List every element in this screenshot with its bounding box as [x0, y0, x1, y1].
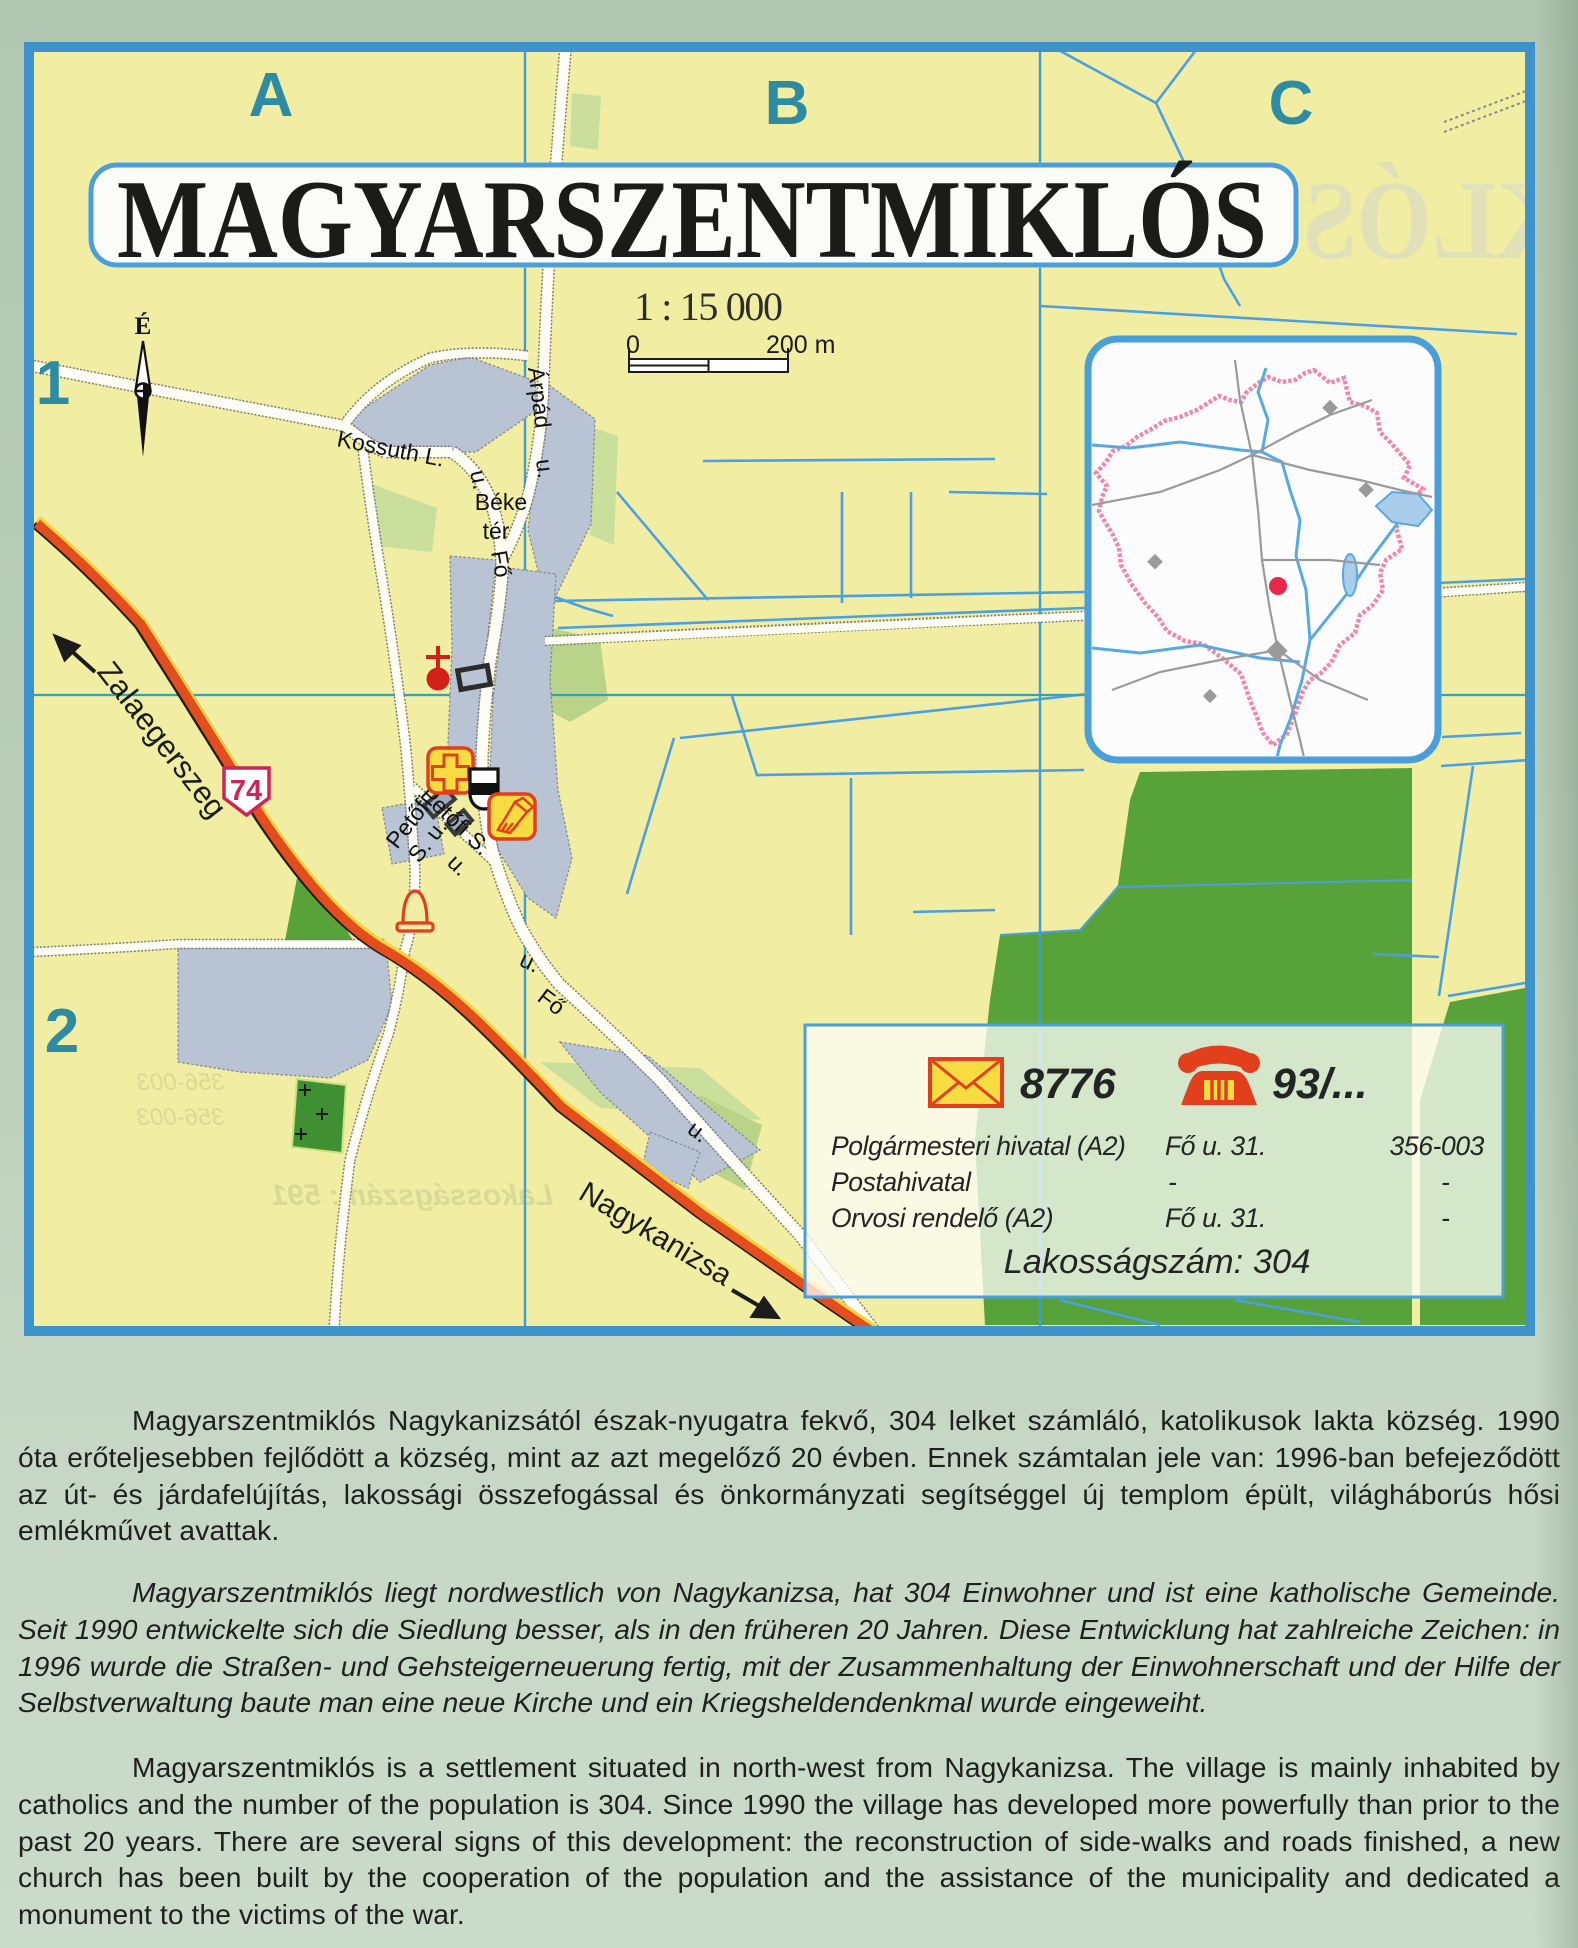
svg-text:Orvosi rendelő (A2): Orvosi rendelő (A2): [831, 1203, 1053, 1233]
svg-text:356-003: 356-003: [1390, 1131, 1485, 1161]
svg-text:-: -: [1441, 1167, 1450, 1197]
svg-text:Polgármesteri hivatal (A2): Polgármesteri hivatal (A2): [831, 1131, 1125, 1161]
svg-text:É: É: [135, 312, 152, 340]
svg-text:Lakosságszám: 304: Lakosságszám: 304: [1004, 1243, 1311, 1281]
svg-text:1: 1: [36, 349, 70, 418]
svg-text:Fő: Fő: [486, 548, 516, 579]
svg-text:Fő u. 31.: Fő u. 31.: [1165, 1131, 1266, 1161]
svg-text:-: -: [1441, 1203, 1450, 1233]
svg-text:MAGYARSZENTMIKLÓS: MAGYARSZENTMIKLÓS: [117, 158, 1267, 282]
svg-text:200 m: 200 m: [766, 331, 835, 359]
svg-text:356-003: 356-003: [136, 1069, 225, 1096]
svg-text:93/...: 93/...: [1272, 1060, 1368, 1108]
svg-text:1 : 15 000: 1 : 15 000: [634, 284, 783, 329]
svg-text:Lakosságszám: 591: Lakosságszám: 591: [271, 1179, 553, 1212]
svg-text:-: -: [1168, 1167, 1177, 1197]
svg-text:74: 74: [230, 775, 262, 807]
svg-text:8776: 8776: [1020, 1060, 1117, 1108]
svg-text:Fő u. 31.: Fő u. 31.: [1165, 1203, 1266, 1233]
svg-text:2: 2: [45, 997, 79, 1066]
svg-text:B: B: [765, 69, 810, 138]
svg-text:Béke: Béke: [475, 489, 527, 515]
svg-text:u.: u.: [531, 457, 559, 479]
svg-text:356-003: 356-003: [136, 1104, 225, 1131]
svg-text:A: A: [249, 61, 294, 130]
svg-text:C: C: [1269, 69, 1314, 138]
svg-text:Postahivatal: Postahivatal: [831, 1167, 972, 1197]
svg-text:tér: tér: [483, 518, 510, 544]
